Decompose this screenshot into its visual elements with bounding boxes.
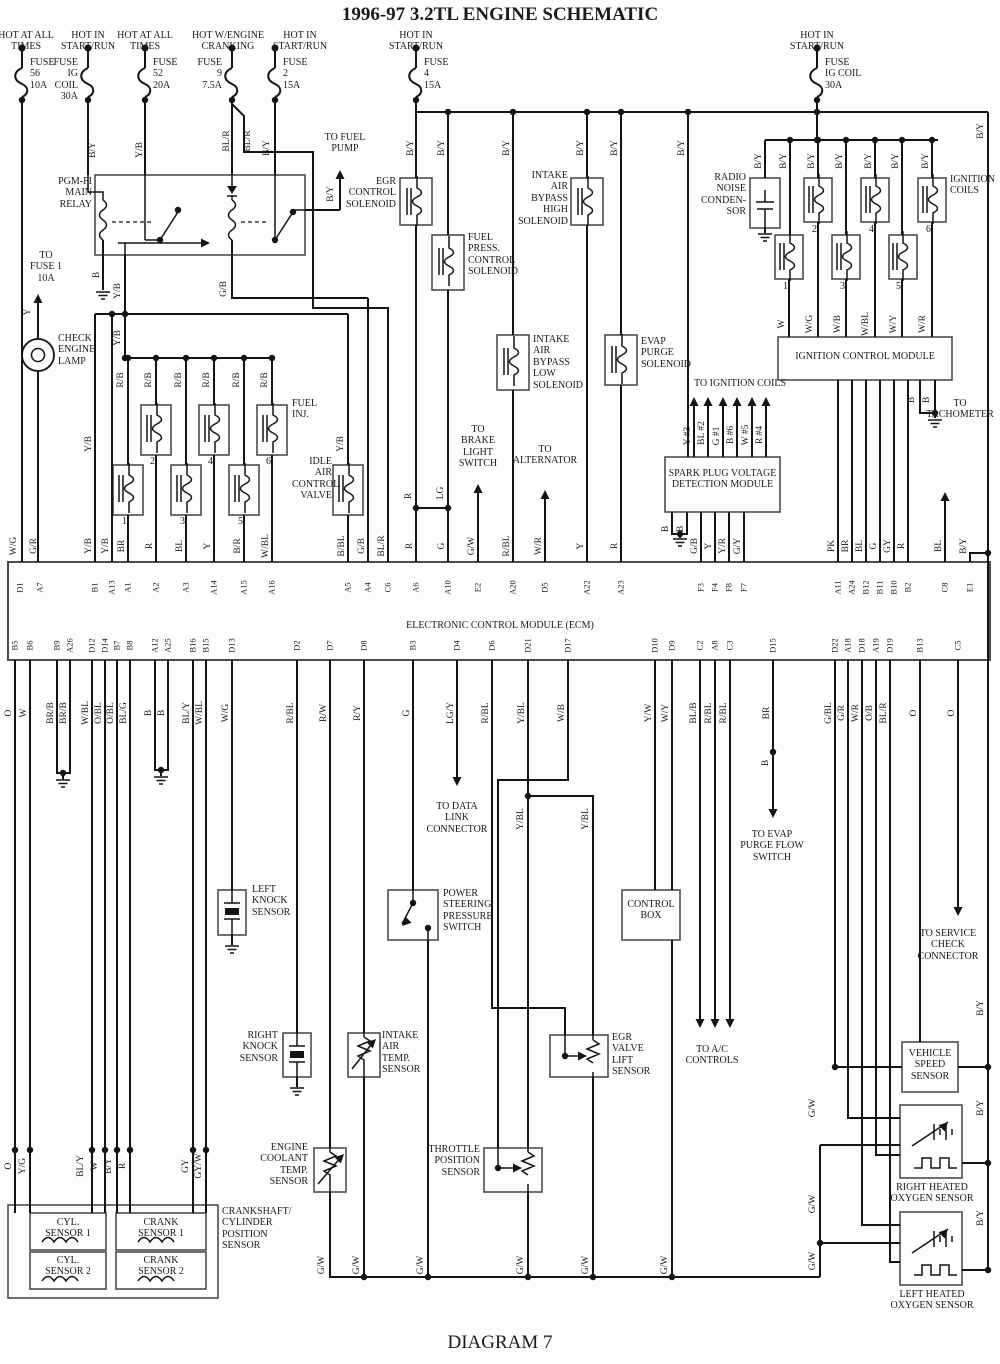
to-tachometer-label: TO TACHOMETER — [922, 398, 998, 421]
wire-color-label: B/Y — [975, 1076, 987, 1140]
wire-color-label: O — [946, 681, 958, 745]
intake-air-temp-sensor-label: INTAKE AIR TEMP. SENSOR — [382, 1030, 426, 1076]
wire-color-label: Y/B — [100, 514, 112, 578]
wire-color-label: W/B — [832, 292, 844, 356]
crank-sensor-2-label: CRANK SENSOR 2 — [116, 1255, 206, 1278]
wire-color-label: Y — [202, 514, 214, 578]
ecm-pin-bottom: D12 — [87, 634, 98, 658]
ecm-pin-top: A16 — [267, 576, 278, 600]
wire-color-label: R/B — [201, 348, 213, 412]
ecm-pin-bottom: B3 — [408, 634, 419, 658]
left-knock-sensor-label: LEFT KNOCK SENSOR — [252, 884, 294, 918]
wire-color-label: W — [89, 1134, 101, 1198]
ecm-pin-top: A1 — [123, 576, 134, 600]
ecm-pin-bottom: B9 — [52, 634, 63, 658]
right-heated-oxygen-sensor-label: RIGHT HEATED OXYGEN SENSOR — [888, 1182, 976, 1205]
wire-color-label: R/B — [143, 348, 155, 412]
wire-color-label: O/B — [864, 681, 876, 745]
ecm-pin-top: C6 — [383, 576, 394, 600]
wire-color-label: G/W — [351, 1233, 363, 1297]
wire-color-label: G/W — [415, 1233, 427, 1297]
wire-color-label: B/Y — [325, 162, 337, 226]
wire-color-label: B/Y — [575, 116, 587, 180]
component-number: 2 — [150, 456, 155, 467]
wire-color-label: R/B — [231, 348, 243, 412]
wire-color-label: G — [436, 514, 448, 578]
ecm-pin-top: F3 — [696, 576, 707, 600]
ecm-pin-bottom: C5 — [953, 634, 964, 658]
ecm-pin-bottom: D8 — [359, 634, 370, 658]
to-evap-purge-flow-switch-label: TO EVAP PURGE FLOW SWITCH — [733, 829, 811, 863]
fuel-press-control-solenoid-label: FUEL PRESS. CONTROL SOLENOID — [468, 232, 510, 278]
left-heated-oxygen-sensor-label: LEFT HEATED OXYGEN SENSOR — [888, 1289, 976, 1312]
power-steering-pressure-switch-label: POWER STEERING PRESSURE SWITCH — [443, 888, 489, 934]
wire-color-label: R/BL — [285, 681, 297, 745]
ecm-pin-bottom: A25 — [163, 634, 174, 658]
to-brake-light-switch-label: TO BRAKE LIGHT SWITCH — [452, 424, 504, 470]
wire-color-label: BR/B — [58, 681, 70, 745]
component-number: 6 — [926, 224, 931, 235]
right-knock-element — [290, 1051, 304, 1058]
wire-color-label: Y/B — [83, 514, 95, 578]
check-engine-lamp-label: CHECK ENGINE LAMP — [58, 333, 92, 367]
wire-color-label: B/Y — [501, 116, 513, 180]
wire-color-label: GY — [882, 514, 894, 578]
fuse-label-7: FUSE IG COIL 30A — [825, 57, 877, 91]
ecm-pin-bottom: D9 — [667, 634, 678, 658]
fuel-injector-2-box — [141, 405, 171, 455]
fuel-inj-label: FUEL INJ. — [292, 398, 332, 421]
wire-color-label: B/BL — [336, 514, 348, 578]
wire-color-label: R/B — [259, 348, 271, 412]
wire-color-label: W — [18, 681, 30, 745]
wire-color-label: BL #2 — [696, 401, 708, 465]
ignition-coil-1-box — [775, 235, 803, 279]
ecm-pin-top: A13 — [107, 576, 118, 600]
component-number: 4 — [208, 456, 213, 467]
to-ac-controls-label: TO A/C CONTROLS — [678, 1044, 746, 1067]
wire-color-label: R/B — [173, 348, 185, 412]
ecm-pin-bottom: D15 — [768, 634, 779, 658]
fuel-injector-1-box — [113, 465, 143, 515]
wire-color-label: Y/G — [17, 1134, 29, 1198]
component-number: 5 — [896, 281, 901, 292]
wire-color-label: BL/R — [242, 109, 254, 173]
wire-color-label: R/Y — [352, 681, 364, 745]
component-symbols — [42, 175, 957, 1281]
wire-color-label: G #1 — [711, 404, 723, 468]
fuse-label-4: FUSE 9 7.5A — [170, 57, 222, 91]
wire-color-label: BL/R — [376, 514, 388, 578]
engine-coolant-temp-sensor-label: ENGINE COOLANT TEMP. SENSOR — [248, 1142, 308, 1188]
wire-color-label: Y — [575, 514, 587, 578]
ecm-pin-bottom: A8 — [710, 634, 721, 658]
wire-color-label: W/G — [220, 681, 232, 745]
wire-color-label: G/Y — [732, 514, 744, 578]
schematic-sheet: 1996-97 3.2TL ENGINE SCHEMATIC — [0, 0, 1000, 1364]
wire-color-label: R/BL — [501, 514, 513, 578]
ecm-pin-top: B2 — [903, 576, 914, 600]
fuel-injector-5-box — [229, 465, 259, 515]
wire-color-label: Y/B — [335, 412, 347, 476]
power-feed-head-5: HOT IN START/RUN — [258, 30, 342, 53]
ecm-pin-bottom: A12 — [150, 634, 161, 658]
evap-purge-solenoid-label: EVAP PURGE SOLENOID — [641, 336, 685, 370]
ecm-pin-top: A22 — [582, 576, 593, 600]
ecm-pin-top: A24 — [847, 576, 858, 600]
power-feed-head-3: HOT AT ALL TIMES — [103, 30, 187, 53]
ecm-pin-bottom: D7 — [325, 634, 336, 658]
wire-color-label: W/BL — [260, 514, 272, 578]
vehicle-speed-sensor-label: VEHICLE SPEED SENSOR — [903, 1048, 957, 1082]
power-feed-head-6: HOT IN START/RUN — [374, 30, 458, 53]
wire-color-label: B — [906, 368, 918, 432]
ecm-pin-top: A6 — [411, 576, 422, 600]
wire-color-label: BL — [854, 514, 866, 578]
wire-color-label: W/R — [917, 292, 929, 356]
wire-color-label: LG/Y — [445, 681, 457, 745]
ecm-pin-top: A3 — [181, 576, 192, 600]
intake-air-bypass-high-solenoid-box — [571, 178, 603, 225]
wire-color-label: G/W — [807, 1172, 819, 1236]
intake-air-bypass-high-solenoid-label: INTAKE AIR BYPASS HIGH SOLENOID — [514, 170, 568, 227]
control-box-label: CONTROL BOX — [624, 899, 678, 922]
wire-color-label: O — [908, 681, 920, 745]
fuel-injector-3-box — [171, 465, 201, 515]
ecm-pin-top: E2 — [473, 576, 484, 600]
ecm-pin-bottom: B13 — [915, 634, 926, 658]
wire-color-label: W/B — [556, 681, 568, 745]
wire-color-label: W/Y — [660, 681, 672, 745]
ecm-pin-bottom: D18 — [857, 634, 868, 658]
wire-color-label: R/W — [318, 681, 330, 745]
ignition-coils-label: IGNITION COILS — [950, 174, 1000, 197]
ecm-pin-bottom: D22 — [830, 634, 841, 658]
wire-color-label: G/B — [356, 514, 368, 578]
wire-color-label: B — [143, 681, 155, 745]
wire-color-label: Y/B — [134, 118, 146, 182]
ignition-coil-3-box — [832, 235, 860, 279]
fuel-injector-4-box — [199, 405, 229, 455]
wire-color-label: B/Y — [87, 118, 99, 182]
to-data-link-connector-label: TO DATA LINK CONNECTOR — [424, 801, 490, 835]
wire-color-label: B — [156, 681, 168, 745]
intake-air-bypass-low-solenoid-label: INTAKE AIR BYPASS LOW SOLENOID — [533, 334, 577, 391]
ecm-pin-bottom: D2 — [292, 634, 303, 658]
ecm-pin-bottom: A26 — [65, 634, 76, 658]
wire-color-label: R — [117, 1134, 129, 1198]
wire-color-label: G — [401, 681, 413, 745]
ecm-pin-top: A11 — [833, 576, 844, 600]
spark-plug-module-label: SPARK PLUG VOLTAGE DETECTION MODULE — [667, 468, 778, 491]
ecm-pin-bottom: A19 — [871, 634, 882, 658]
wire-color-label: G/W — [807, 1229, 819, 1293]
component-number: 2 — [812, 224, 817, 235]
ecm-pin-top: F8 — [724, 576, 735, 600]
wire-color-label: G/B — [218, 257, 230, 321]
wire-color-label: W — [776, 292, 788, 356]
ecm-pin-bottom: B8 — [125, 634, 136, 658]
ecm-pin-top: A20 — [508, 576, 519, 600]
radio-noise-condenser-label: RADIO NOISE CONDEN- SOR — [694, 172, 746, 218]
wire-color-label: B/Y — [103, 1134, 115, 1198]
ecm-pin-bottom: B6 — [25, 634, 36, 658]
ecm-pin-top: A23 — [616, 576, 627, 600]
ecm-pin-bottom: D4 — [452, 634, 463, 658]
component-number: 4 — [869, 224, 874, 235]
ecm-pin-top: B1 — [90, 576, 101, 600]
fuse-label-6: FUSE 4 15A — [424, 57, 476, 91]
wire-color-label: W/Y — [888, 292, 900, 356]
wire-color-label: Y/BL — [516, 681, 528, 745]
wire-color-label: BL/R — [878, 681, 890, 745]
to-fuel-pump-label: TO FUEL PUMP — [308, 132, 382, 155]
wire-color-label: W #5 — [740, 403, 752, 467]
ecm-pin-bottom: B16 — [188, 634, 199, 658]
power-feed-head-7: HOT IN START/RUN — [775, 30, 859, 53]
wire-color-label: B/Y — [405, 116, 417, 180]
component-number: 5 — [238, 516, 243, 527]
ecm-pin-bottom: D17 — [563, 634, 574, 658]
wire-color-label: G/R — [28, 514, 40, 578]
wire-color-label: B/Y — [778, 129, 790, 193]
wire-color-label: G — [868, 514, 880, 578]
ecm-pin-top: C8 — [940, 576, 951, 600]
pgm-fi-main-relay-label: PGM-FI MAIN RELAY — [48, 176, 92, 210]
ecm-pin-top: B12 — [861, 576, 872, 600]
wire-color-label: O — [3, 681, 15, 745]
wire-color-label: G/W — [515, 1233, 527, 1297]
throttle-position-sensor-label: THROTTLE POSITION SENSOR — [420, 1144, 480, 1178]
wire-color-label: B/Y — [890, 129, 902, 193]
egr-control-solenoid-box — [400, 178, 432, 225]
wire-color-label: R — [404, 514, 416, 578]
wire-color-label: BL/Y — [75, 1134, 87, 1198]
ecm-pin-top: E1 — [965, 576, 976, 600]
ecm-pin-bottom: B5 — [10, 634, 21, 658]
component-number: 1 — [783, 281, 788, 292]
ecm-pin-top: A10 — [443, 576, 454, 600]
wire-color-label: Y/R — [717, 514, 729, 578]
intake-air-bypass-low-solenoid-box — [497, 335, 529, 390]
to-alternator-label: TO ALTERNATOR — [512, 444, 578, 467]
to-service-check-connector-label: TO SERVICE CHECK CONNECTOR — [908, 928, 988, 962]
ecm-pin-bottom: C3 — [725, 634, 736, 658]
left-knock-element — [225, 908, 239, 915]
wire-color-label: Y/BL — [515, 787, 527, 851]
wire-color-label: B/Y — [261, 116, 273, 180]
wire-color-label: R — [609, 514, 621, 578]
component-number: 1 — [122, 516, 127, 527]
crank-sensor-1-label: CRANK SENSOR 1 — [116, 1217, 206, 1240]
wire-color-label: R/B — [115, 348, 127, 412]
ecm-pin-top: F7 — [739, 576, 750, 600]
ecm-pin-bottom: D13 — [227, 634, 238, 658]
wire-color-label: B/Y — [436, 116, 448, 180]
wire-color-label: W/BL — [860, 292, 872, 356]
ecm-pin-top: A2 — [151, 576, 162, 600]
wire-color-label: G/W — [316, 1233, 328, 1297]
wire-color-label: B/Y — [958, 514, 970, 578]
ecm-pin-bottom: B7 — [112, 634, 123, 658]
wire-color-label: Y/BL — [580, 787, 592, 851]
wire-color-label: W/R — [533, 514, 545, 578]
fuel-press-control-solenoid-box — [432, 235, 464, 290]
wire-color-label: W/BL — [80, 681, 92, 745]
wire-color-label: R — [144, 514, 156, 578]
to-ignition-coils-label: TO IGNITION COILS — [680, 378, 800, 389]
ecm-pin-top: D5 — [540, 576, 551, 600]
wire-color-label: BL — [933, 514, 945, 578]
ecm-pin-top: B10 — [889, 576, 900, 600]
wire-color-label: BR/B — [45, 681, 57, 745]
wire-color-label: BL/R — [221, 109, 233, 173]
ecm-pin-bottom: A18 — [843, 634, 854, 658]
wire-color-label: BL/Y — [181, 681, 193, 745]
ecm-pin-bottom: D10 — [650, 634, 661, 658]
generated-decor — [12, 45, 991, 1281]
wire-color-label: G/W — [659, 1233, 671, 1297]
fuse-label-5: FUSE 2 15A — [283, 57, 335, 91]
crankshaft-cylinder-position-sensor-label: CRANKSHAFT/ CYLINDER POSITION SENSOR — [222, 1206, 302, 1252]
ecm-pin-bottom: D14 — [100, 634, 111, 658]
wire-color-label: Y — [703, 514, 715, 578]
wire-color-label: G/W — [580, 1233, 592, 1297]
ecm-pin-top: A7 — [35, 576, 46, 600]
wire-color-label: R/BL — [703, 681, 715, 745]
ecm-pin-top: A15 — [239, 576, 250, 600]
wire-color-label: B #6 — [725, 403, 737, 467]
cyl-sensor-2-label: CYL. SENSOR 2 — [30, 1255, 106, 1278]
wire-color-label: O/BL — [105, 681, 117, 745]
wire-color-label: GY/W — [193, 1134, 205, 1198]
ecm-pin-top: B11 — [875, 576, 886, 600]
wire-color-label: GY — [180, 1134, 192, 1198]
wire-color-label: O — [3, 1134, 15, 1198]
idle-air-control-valve-label: IDLE AIR CONTROL VALVE — [292, 456, 332, 502]
wire-color-label: W/G — [8, 514, 20, 578]
wire-color-label: R #4 — [754, 403, 766, 467]
wire-color-label: G/B — [689, 514, 701, 578]
wire-color-label: B/Y — [834, 129, 846, 193]
wire-color-label: B/Y — [806, 129, 818, 193]
wire-color-label: PK — [826, 514, 838, 578]
evap-purge-solenoid-box — [605, 335, 637, 385]
wire-color-label: B — [760, 731, 772, 795]
diagram-caption: DIAGRAM 7 — [0, 1332, 1000, 1354]
wire-color-label: BR — [840, 514, 852, 578]
wire-color-label: B/Y — [753, 129, 765, 193]
wire-color-label: B/Y — [975, 1186, 987, 1250]
wire-color-label: O/BL — [93, 681, 105, 745]
wire-color-label: B/Y — [975, 99, 987, 163]
wire-color-label: R — [896, 514, 908, 578]
fuse-label-2: FUSE IG COIL 30A — [26, 57, 78, 103]
wire-color-label: W/BL — [194, 681, 206, 745]
ecm-pin-top: A4 — [363, 576, 374, 600]
wire-color-label: B — [91, 243, 103, 307]
ecm-pin-top: A5 — [343, 576, 354, 600]
ecm-pin-top: D1 — [15, 576, 26, 600]
ecm-label: ELECTRONIC CONTROL MODULE (ECM) — [300, 620, 700, 631]
wire-color-label: B/Y — [863, 129, 875, 193]
wire-color-label: Y #3 — [682, 404, 694, 468]
wire-color-label: R/BL — [718, 681, 730, 745]
page-title: 1996-97 3.2TL ENGINE SCHEMATIC — [0, 4, 1000, 26]
cyl-sensor-1-label: CYL. SENSOR 1 — [30, 1217, 106, 1240]
right-knock-sensor-label: RIGHT KNOCK SENSOR — [226, 1030, 278, 1064]
wire-color-label: Y/W — [643, 681, 655, 745]
ecm-pin-bottom: D6 — [487, 634, 498, 658]
wire-color-label: R/BL — [480, 681, 492, 745]
wire-color-label: Y/B — [83, 412, 95, 476]
wire-color-label: BL/B — [688, 681, 700, 745]
ecm-pin-top: F4 — [710, 576, 721, 600]
wire-color-label: G/R — [836, 681, 848, 745]
ecm-pin-bottom: D19 — [885, 634, 896, 658]
wire-color-label: G/BL — [823, 681, 835, 745]
wire-color-label: B — [675, 497, 687, 561]
ecm-pin-top: A14 — [209, 576, 220, 600]
wire-color-label: W/R — [850, 681, 862, 745]
wire-color-label: B — [921, 368, 933, 432]
wire-color-label: B/Y — [676, 116, 688, 180]
wire-color-label: G/W — [466, 514, 478, 578]
ecm-pin-bottom: C2 — [695, 634, 706, 658]
egr-control-solenoid-label: EGR CONTROL SOLENOID — [344, 176, 396, 210]
wire-color-label: B/Y — [975, 976, 987, 1040]
wire-color-label: B — [660, 497, 672, 561]
wire-color-label: BL/G — [118, 681, 130, 745]
egr-valve-lift-sensor-label: EGR VALVE LIFT SENSOR — [612, 1032, 664, 1078]
component-number: 3 — [840, 281, 845, 292]
wire-color-label: B/Y — [609, 116, 621, 180]
ecm-pin-bottom: D21 — [523, 634, 534, 658]
component-number: 3 — [180, 516, 185, 527]
relay-diode — [227, 186, 237, 194]
ecm-pin-bottom: B15 — [201, 634, 212, 658]
wire-color-label: G/W — [807, 1076, 819, 1140]
wire-color-label: B/Y — [920, 129, 932, 193]
component-number: 6 — [266, 456, 271, 467]
fuel-injector-6-box — [257, 405, 287, 455]
wire-color-label: W/G — [804, 292, 816, 356]
wire-color-label: Y — [22, 280, 34, 344]
check-engine-lamp-bulb — [32, 349, 45, 362]
